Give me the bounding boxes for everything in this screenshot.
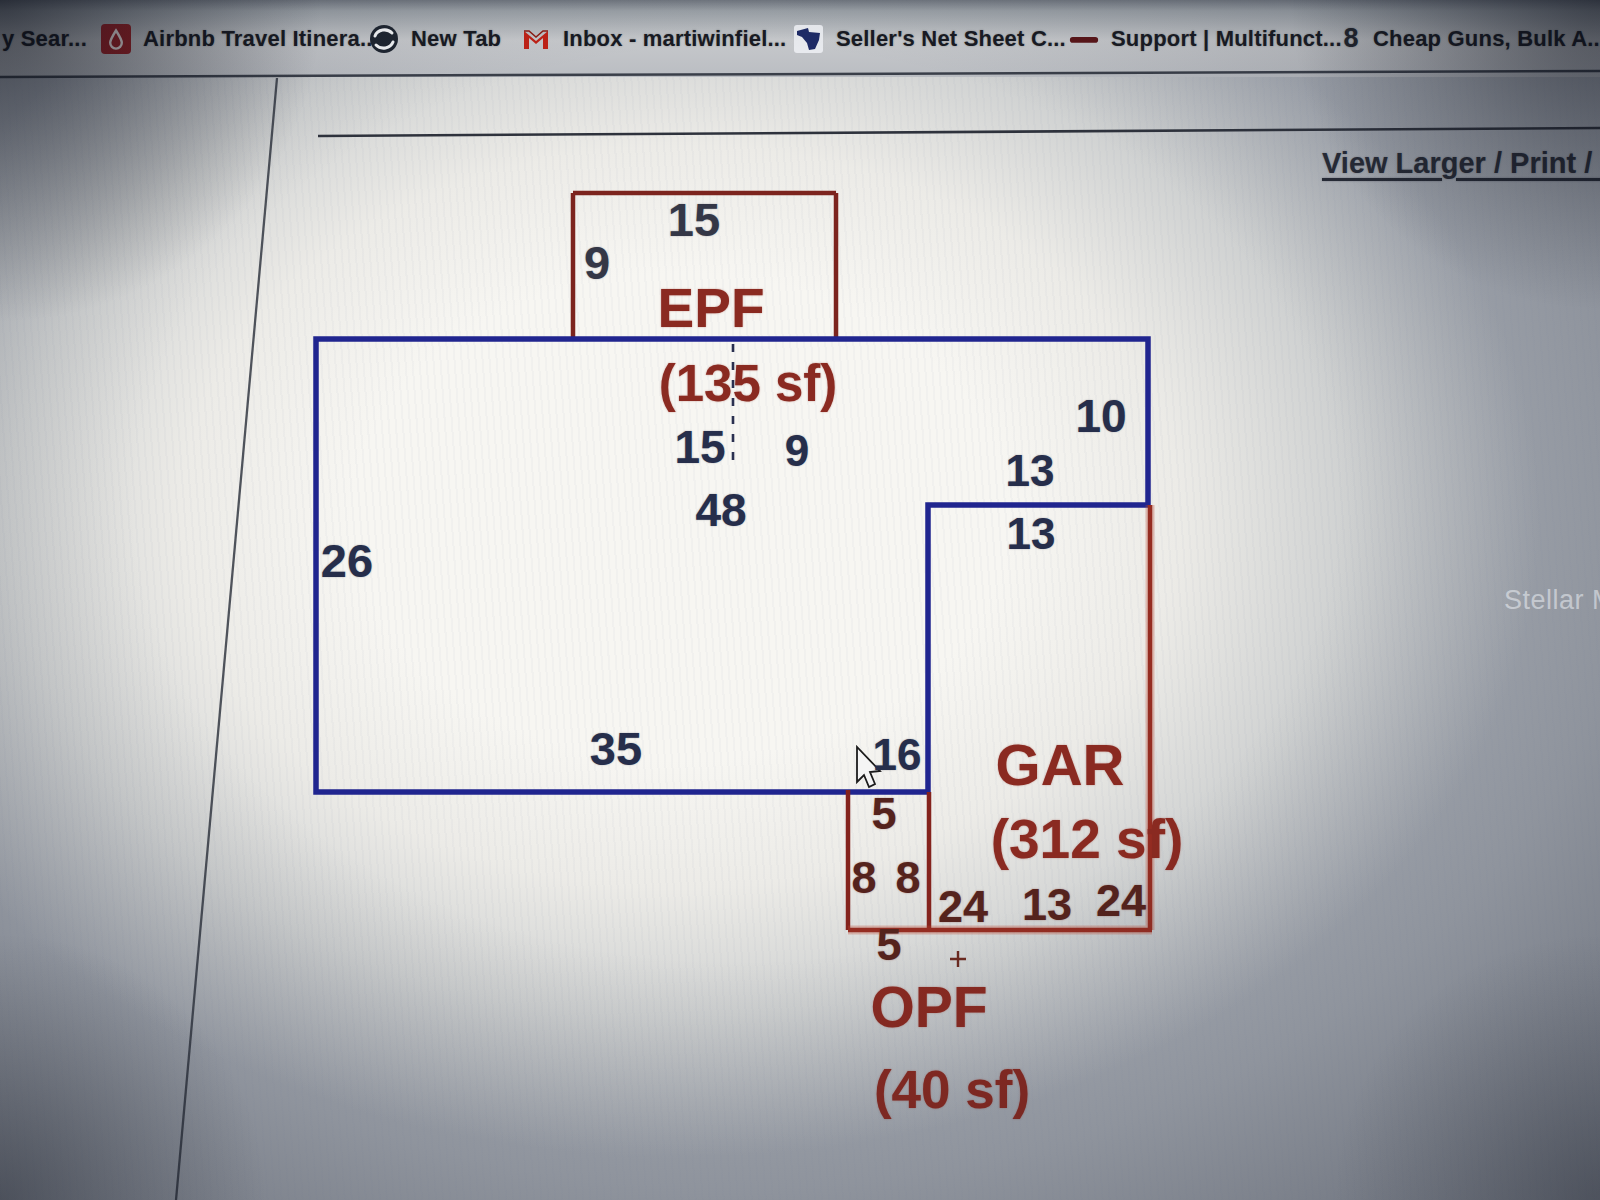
gar-top-outer-dimension: 13 [1006, 446, 1055, 496]
epf-top-dimension: 15 [668, 192, 720, 247]
fla-right-upper-dimension: 10 [1075, 389, 1126, 443]
room-label-epf: EPF [658, 276, 765, 340]
opf-area-label: (40 sf) [874, 1059, 1030, 1120]
fla-top-dimension: 48 [695, 483, 746, 537]
fla-segment-dimension-9: 9 [785, 426, 809, 476]
room-label-gar: GAR [996, 731, 1125, 798]
epf-area-label: (135 sf) [659, 354, 838, 413]
epf-left-dimension: 9 [584, 235, 610, 290]
view-larger-print-link[interactable]: View Larger / Print / S [1322, 147, 1600, 180]
room-label-opf: OPF [870, 974, 987, 1040]
bookmarks-bar-divider [0, 71, 1600, 77]
fla-bottom-dimension: 35 [590, 721, 642, 776]
gar-bottom-dimension-13: 13 [1022, 879, 1072, 931]
photographed-monitor-screen: y Sear... Airbnb Travel Itinera... New T… [0, 0, 1600, 1200]
gar-area-label: (312 sf) [991, 807, 1184, 871]
opf-left-dimension: 8 [851, 852, 876, 904]
gar-top-inner-dimension: 13 [1007, 509, 1056, 559]
sketch-canvas [0, 0, 1600, 1200]
gar-bottom-dimension-24a: 24 [938, 881, 988, 933]
cross-tick [950, 951, 966, 967]
opf-right-dimension: 8 [895, 852, 920, 904]
stellar-mls-watermark: Stellar MLS [1504, 585, 1600, 616]
fla-segment-dimension-15: 15 [674, 420, 725, 474]
opf-bottom-dimension: 5 [876, 919, 901, 971]
fla-right-lower-dimension: 16 [873, 730, 922, 780]
header-rule [318, 128, 1600, 136]
opf-top-dimension: 5 [871, 788, 896, 840]
gar-bottom-dimension-24b: 24 [1096, 875, 1146, 927]
fla-left-dimension: 26 [321, 533, 373, 588]
page-left-divider [176, 78, 277, 1200]
